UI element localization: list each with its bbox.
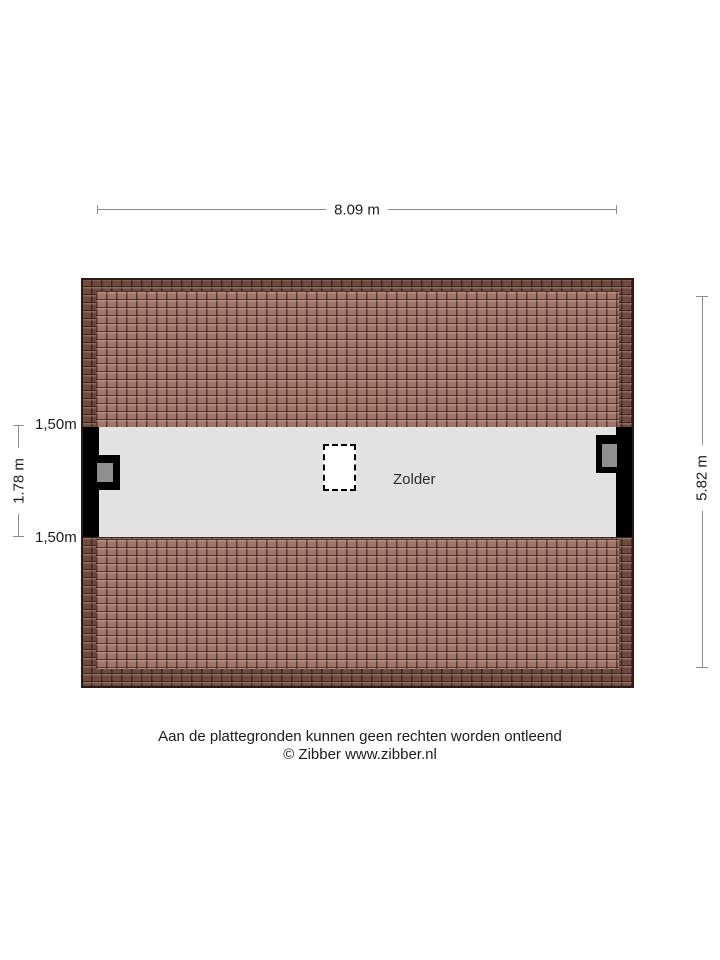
knee-wall-label-top: 1,50m (35, 416, 77, 433)
dimension-left-tick-top (13, 425, 24, 426)
dimension-right-label: 5.82 m (694, 445, 711, 511)
roof-surface-bottom (81, 537, 634, 688)
chimney-right-flue (602, 444, 617, 467)
dimension-right-tick-bottom (696, 667, 708, 668)
footer-copyright: © Zibber www.zibber.nl (0, 746, 720, 764)
dimension-top-tick-right (616, 205, 617, 214)
footer: Aan de plattegronden kunnen geen rechten… (0, 728, 720, 764)
skylight-dashed (323, 444, 356, 491)
dimension-right-tick-top (696, 296, 708, 297)
chimney-left-flue (97, 463, 113, 482)
roof-plan: Zolder (81, 278, 634, 688)
dimension-left-label: 1.78 m (11, 448, 28, 514)
knee-wall-label-bottom: 1,50m (35, 529, 77, 546)
roof-surface-top (81, 278, 634, 427)
roof-surface-bottom-field (96, 539, 619, 669)
dimension-left-tick-bottom (13, 536, 24, 537)
floorplan-canvas: 8.09 m Zolder 1,50m 1,50m 1.78 m (0, 0, 720, 960)
gable-wall-right (616, 427, 634, 537)
gable-wall-left (81, 427, 99, 537)
dimension-top-label: 8.09 m (326, 202, 388, 219)
roof-surface-top-field (96, 291, 619, 427)
footer-disclaimer: Aan de plattegronden kunnen geen rechten… (0, 728, 720, 746)
attic-floor: Zolder (81, 427, 634, 537)
dimension-top-tick-left (97, 205, 98, 214)
room-label: Zolder (393, 471, 436, 488)
